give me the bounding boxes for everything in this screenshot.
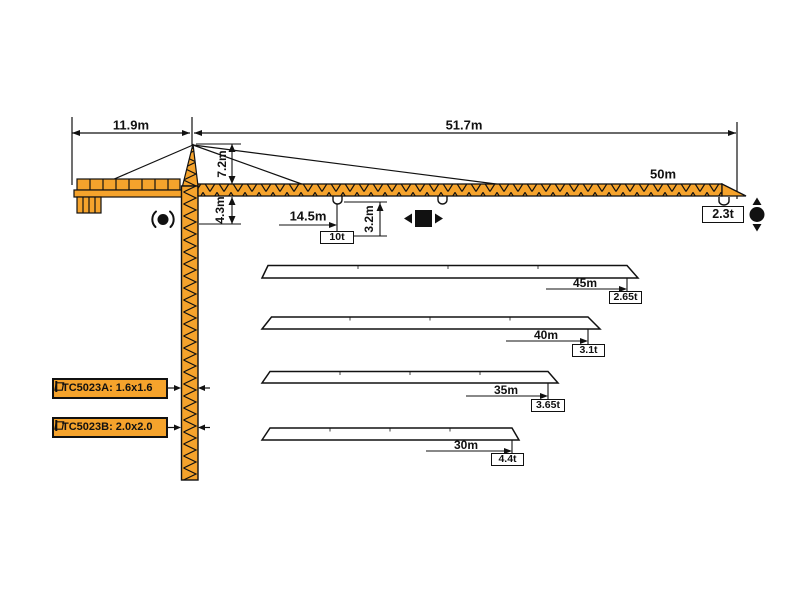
jib-tip bbox=[722, 184, 746, 196]
dim-label-max-load-radius: 14.5m bbox=[290, 210, 327, 223]
variant-tipload-45m: 2.65t bbox=[609, 291, 642, 304]
crane-linework bbox=[0, 0, 800, 600]
tip-load-box-50m: 2.3t bbox=[702, 206, 744, 223]
main-jib-lattice bbox=[198, 184, 746, 196]
trolley-travel-icon bbox=[404, 210, 443, 227]
counterweight bbox=[77, 197, 101, 213]
variant-tipload-40m: 3.1t bbox=[572, 344, 605, 357]
trolley-hooks bbox=[333, 196, 729, 205]
crane-diagram: 11.9m 51.7m 7.2m 4.3m 14.5m 3.2m 50m 10t… bbox=[0, 0, 800, 600]
model-label: TC5023B: 2.0x2.0 bbox=[62, 422, 153, 433]
dim-label-counter-jib: 11.9m bbox=[113, 119, 149, 132]
dim-label-jib: 51.7m bbox=[446, 119, 483, 132]
slewing-icon bbox=[152, 212, 173, 228]
variant-length-40m: 40m bbox=[534, 329, 558, 341]
max-load-box: 10t bbox=[320, 231, 354, 244]
dim-label-hook: 3.2m bbox=[363, 205, 375, 232]
model-box-tc5023a: TC5023A: 1.6x1.6 bbox=[52, 378, 168, 399]
dim-hook-arrow bbox=[377, 203, 384, 211]
variant-tipload-30m: 4.4t bbox=[491, 453, 524, 466]
dim-label-slewing-height: 4.3m bbox=[214, 196, 226, 223]
tower-head bbox=[183, 144, 199, 186]
dim-label-head-height: 7.2m bbox=[216, 150, 228, 177]
counter-jib bbox=[74, 179, 184, 197]
tower-mast bbox=[182, 186, 199, 480]
jib-variant-35m bbox=[262, 372, 558, 384]
variant-length-45m: 45m bbox=[573, 277, 597, 289]
hoist-icon bbox=[750, 198, 765, 232]
jib-variant-30m bbox=[262, 428, 519, 440]
variant-length-35m: 35m bbox=[494, 384, 518, 396]
model-label: TC5023A: 1.6x1.6 bbox=[62, 383, 153, 394]
label-jib-length-50m: 50m bbox=[650, 168, 676, 181]
variant-length-30m: 30m bbox=[454, 439, 478, 451]
variant-tipload-35m: 3.65t bbox=[531, 399, 565, 412]
model-box-tc5023b: TC5023B: 2.0x2.0 bbox=[52, 417, 168, 438]
dim-max-load-radius-arrow bbox=[329, 222, 337, 228]
